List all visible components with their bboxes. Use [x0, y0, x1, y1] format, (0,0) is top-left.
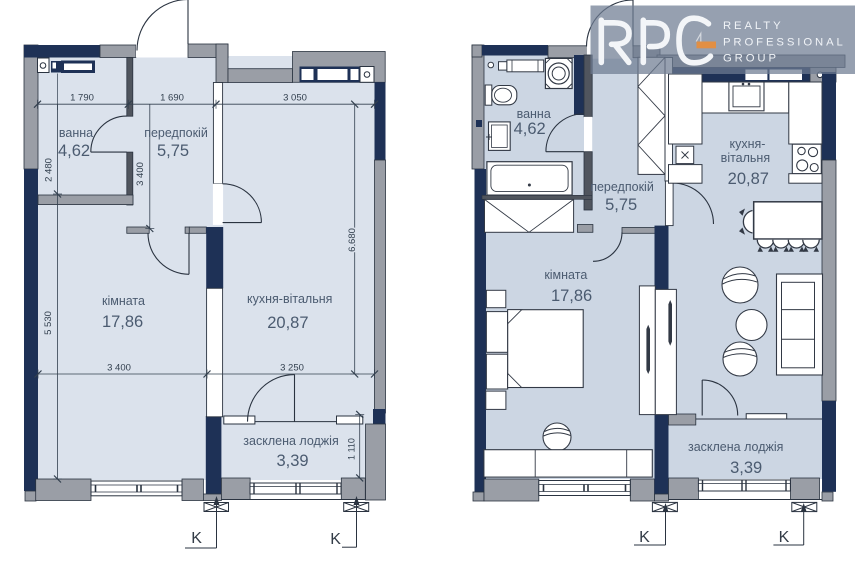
svg-text:вітальня: вітальня: [721, 151, 770, 165]
svg-text:20,87: 20,87: [267, 314, 308, 332]
svg-text:6 680: 6 680: [347, 228, 358, 252]
svg-text:4,62: 4,62: [514, 120, 546, 138]
svg-text:ванна: ванна: [59, 126, 93, 140]
svg-text:кухня-: кухня-: [730, 137, 766, 151]
svg-text:1 110: 1 110: [347, 438, 357, 460]
svg-text:засклена лоджія: засклена лоджія: [243, 434, 338, 448]
svg-text:5 530: 5 530: [43, 311, 54, 335]
svg-text:REALTY: REALTY: [723, 20, 784, 32]
svg-text:GROUP: GROUP: [723, 53, 779, 65]
svg-text:передпокій: передпокій: [590, 180, 654, 194]
svg-text:5,75: 5,75: [157, 142, 189, 160]
svg-text:1 690: 1 690: [160, 93, 184, 104]
svg-text:PROFESSIONAL: PROFESSIONAL: [723, 36, 846, 48]
svg-text:K: K: [639, 529, 650, 546]
svg-text:K: K: [779, 529, 790, 546]
svg-text:3,39: 3,39: [276, 452, 308, 470]
svg-text:2 480: 2 480: [44, 158, 55, 182]
svg-text:3 400: 3 400: [107, 363, 131, 374]
svg-text:4,62: 4,62: [58, 142, 90, 160]
svg-text:5,75: 5,75: [605, 196, 637, 214]
svg-text:17,86: 17,86: [102, 313, 143, 331]
svg-text:1 790: 1 790: [70, 93, 94, 104]
svg-text:3,39: 3,39: [730, 459, 762, 477]
svg-text:кімната: кімната: [102, 294, 145, 308]
svg-text:20,87: 20,87: [728, 170, 769, 188]
svg-text:3 050: 3 050: [283, 93, 307, 104]
svg-text:передпокій: передпокій: [144, 126, 208, 140]
svg-text:K: K: [330, 531, 341, 548]
svg-text:K: K: [191, 530, 202, 547]
svg-text:17,86: 17,86: [551, 287, 592, 305]
svg-text:ванна: ванна: [517, 107, 551, 121]
svg-text:кухня-вітальня: кухня-вітальня: [247, 292, 332, 306]
svg-text:3 400: 3 400: [135, 162, 146, 186]
svg-text:кімната: кімната: [544, 268, 587, 282]
svg-text:засклена лоджія: засклена лоджія: [688, 440, 783, 454]
svg-text:3 250: 3 250: [280, 363, 304, 374]
